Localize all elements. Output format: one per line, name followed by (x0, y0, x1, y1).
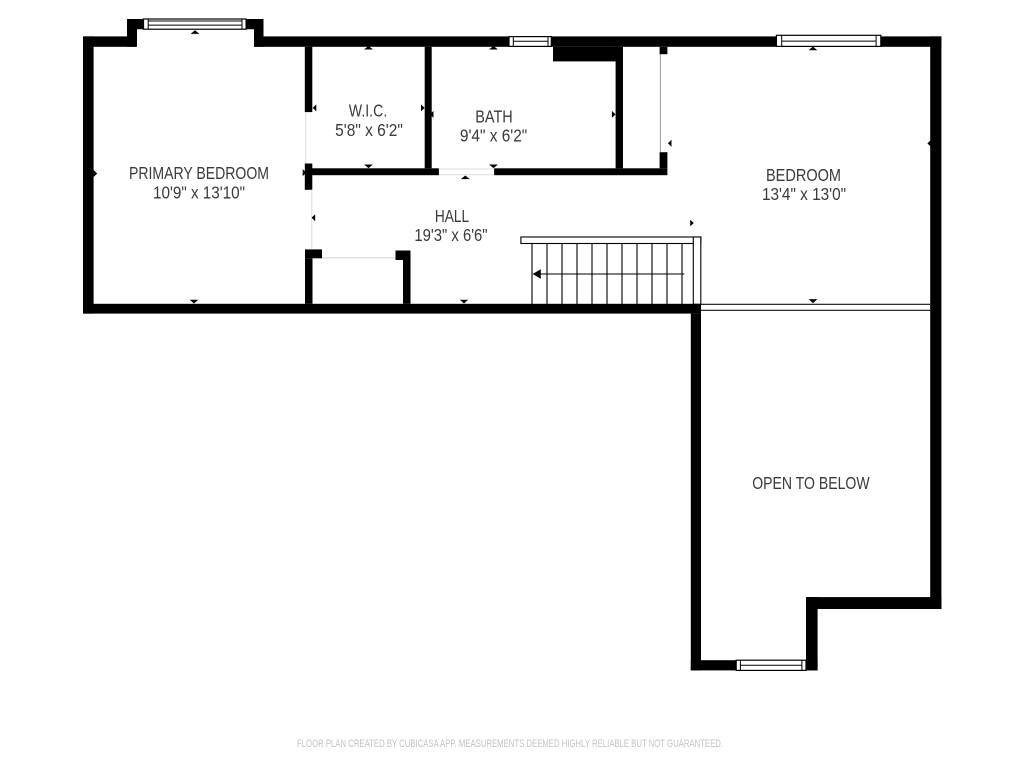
svg-text:13'4" x 13'0": 13'4" x 13'0" (762, 184, 846, 204)
svg-text:BATH: BATH (475, 106, 513, 126)
svg-text:5'8" x 6'2": 5'8" x 6'2" (335, 120, 403, 140)
svg-text:OPEN TO BELOW: OPEN TO BELOW (752, 473, 870, 493)
svg-text:HALL: HALL (435, 206, 469, 226)
svg-text:BEDROOM: BEDROOM (766, 165, 841, 185)
svg-text:10'9" x 13'10": 10'9" x 13'10" (153, 183, 245, 203)
svg-text:19'3" x 6'6": 19'3" x 6'6" (414, 225, 487, 245)
svg-text:9'4" x 6'2": 9'4" x 6'2" (460, 126, 527, 146)
svg-text:PRIMARY BEDROOM: PRIMARY BEDROOM (129, 163, 269, 183)
svg-text:FLOOR PLAN CREATED BY CUBICASA: FLOOR PLAN CREATED BY CUBICASA APP. MEAS… (297, 738, 723, 750)
svg-text:W.I.C.: W.I.C. (349, 101, 388, 121)
